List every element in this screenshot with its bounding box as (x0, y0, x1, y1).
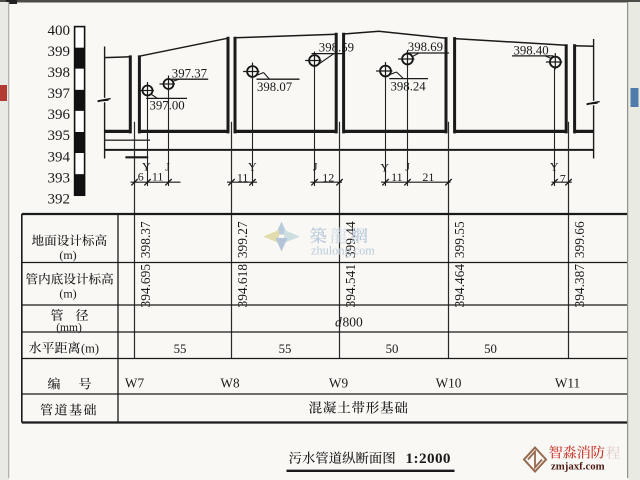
svg-text:394.618 399.27: 394.618 399.27 (235, 221, 250, 307)
svg-text:399: 399 (48, 44, 71, 60)
svg-text:55: 55 (174, 342, 187, 356)
svg-text:393: 393 (48, 170, 71, 186)
svg-text:6: 6 (138, 170, 144, 184)
svg-text:1:2000: 1:2000 (406, 450, 451, 467)
svg-text:zhulong.com: zhulong.com (311, 244, 375, 258)
svg-text:11: 11 (391, 170, 403, 184)
svg-text:(m): (m) (81, 342, 99, 356)
svg-text:394: 394 (48, 149, 71, 165)
svg-text:Y: Y (550, 159, 559, 173)
svg-text:398.07: 398.07 (257, 80, 293, 94)
svg-text:395: 395 (48, 128, 71, 144)
svg-text:392: 392 (48, 191, 71, 207)
svg-text:394.387 399.66: 394.387 399.66 (572, 221, 587, 307)
svg-text:394.695 398.37: 394.695 398.37 (138, 221, 153, 307)
svg-text:397: 397 (48, 86, 71, 102)
svg-text:800: 800 (343, 315, 364, 330)
svg-text:Y: Y (248, 160, 257, 174)
svg-text:21: 21 (422, 170, 434, 184)
svg-text:J: J (165, 160, 170, 174)
svg-text:398: 398 (48, 65, 71, 81)
svg-text:398.24: 398.24 (391, 79, 427, 93)
svg-text:W11: W11 (555, 375, 580, 390)
svg-text:J: J (405, 160, 410, 174)
svg-text:50: 50 (484, 342, 497, 356)
svg-text:d: d (335, 315, 342, 330)
svg-text:400: 400 (48, 23, 71, 39)
svg-text:12: 12 (322, 171, 334, 185)
svg-text:55: 55 (279, 342, 292, 356)
svg-text:394.464 399.55: 394.464 399.55 (452, 221, 467, 307)
svg-text:397.00: 397.00 (150, 98, 185, 112)
svg-text:11: 11 (237, 171, 249, 185)
svg-text:(m): (m) (59, 287, 76, 301)
svg-text:(mm): (mm) (56, 322, 82, 334)
svg-text:(m): (m) (59, 248, 76, 262)
svg-text:398.69: 398.69 (408, 40, 443, 54)
svg-text:zmjaxf.com: zmjaxf.com (551, 461, 605, 473)
svg-text:398.59: 398.59 (319, 41, 354, 55)
svg-text:397.37: 397.37 (172, 67, 208, 81)
svg-text:W10: W10 (436, 375, 462, 390)
svg-text:J: J (313, 160, 318, 174)
svg-text:7: 7 (560, 171, 566, 185)
svg-text:396: 396 (48, 107, 71, 123)
svg-text:11: 11 (152, 170, 164, 184)
svg-text:50: 50 (386, 342, 399, 356)
svg-text:W7: W7 (125, 375, 145, 390)
svg-text:Y: Y (380, 160, 389, 174)
svg-text:W9: W9 (329, 375, 349, 390)
svg-text:398.40: 398.40 (514, 43, 549, 57)
svg-text:W8: W8 (220, 375, 240, 390)
